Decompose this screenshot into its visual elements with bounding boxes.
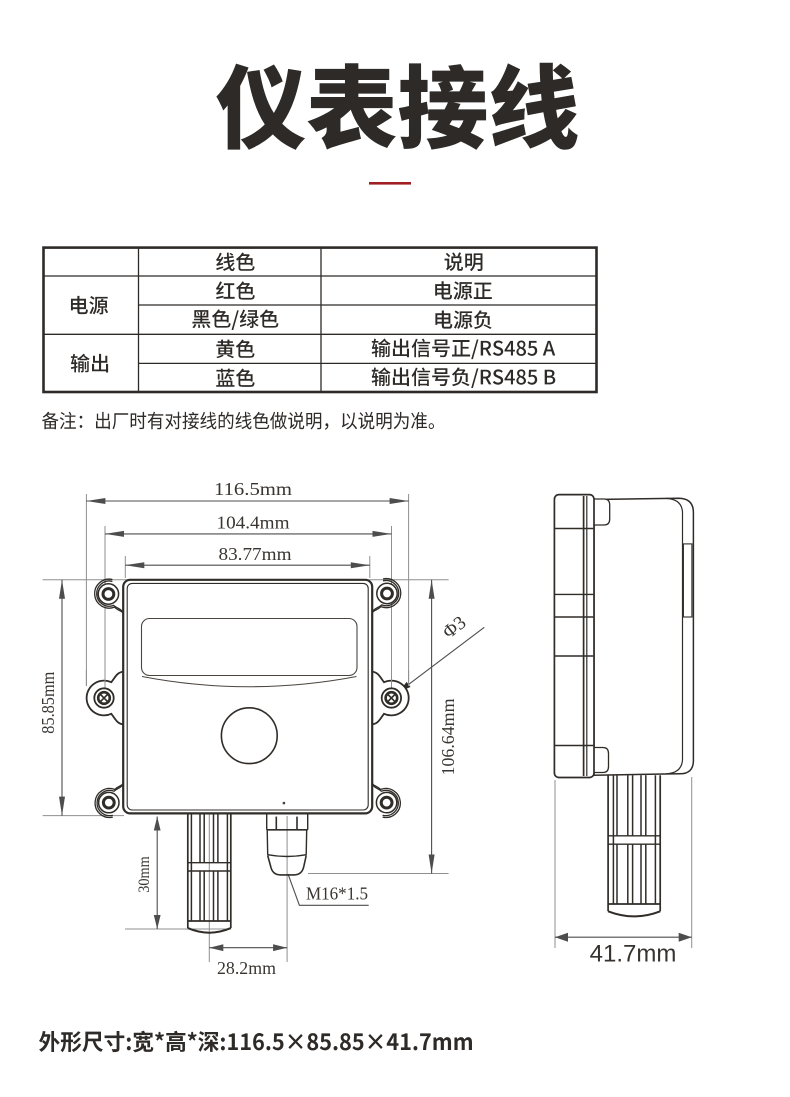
svg-text:41.7mm: 41.7mm xyxy=(590,941,677,968)
svg-text:85.85mm: 85.85mm xyxy=(38,672,58,734)
svg-text:104.4mm: 104.4mm xyxy=(217,513,290,533)
svg-text:83.77mm: 83.77mm xyxy=(219,544,292,564)
svg-text:M16*1.5: M16*1.5 xyxy=(306,884,368,904)
svg-text:28.2mm: 28.2mm xyxy=(217,958,276,978)
svg-text:116.5mm: 116.5mm xyxy=(214,479,292,499)
svg-text:30mm: 30mm xyxy=(136,856,153,893)
svg-text:106.64mm: 106.64mm xyxy=(438,699,458,776)
